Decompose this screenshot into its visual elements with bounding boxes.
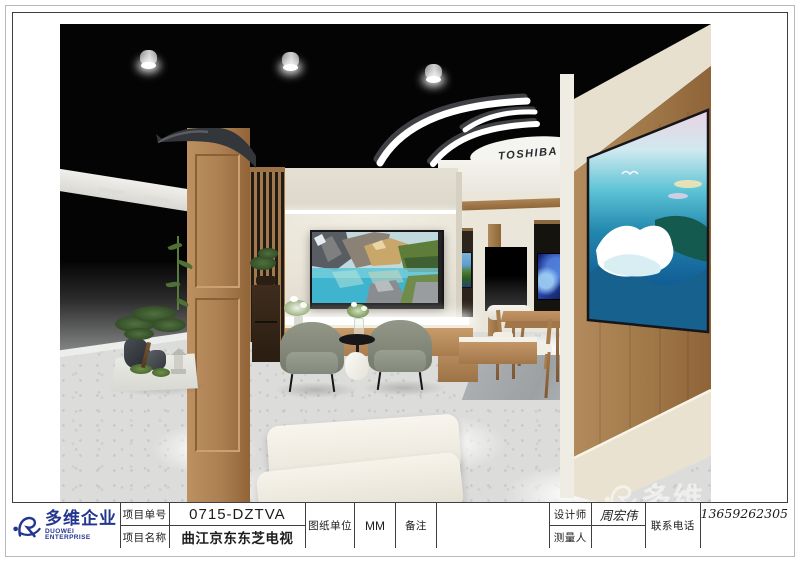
stone-lantern	[171, 369, 186, 374]
downlight	[425, 64, 442, 79]
table-leg	[556, 322, 559, 382]
pine-canopy	[124, 328, 154, 340]
armchair-left	[280, 322, 344, 392]
drawing-sheet: TOSHIBA	[0, 0, 800, 566]
company-logo: 多维企业 DUOWEI ENTERPRISE	[12, 503, 120, 548]
main-tv	[310, 230, 444, 309]
white-flower-bouquet	[282, 296, 314, 324]
designer-label: 设计师	[550, 503, 591, 525]
wall-fascia	[272, 168, 458, 214]
project-no-value: 0715-DZTVA	[170, 503, 305, 525]
wall-side-face	[456, 172, 462, 330]
unit-value: MM	[354, 503, 394, 548]
project-no-label: 项目单号	[121, 503, 169, 525]
cabinet-step	[459, 337, 537, 364]
project-name-value: 曲江京东东芝电视	[170, 525, 305, 548]
phone-value: 13659262305	[701, 506, 788, 521]
company-name-cn: 多维企业	[45, 510, 119, 527]
duowei-logo-icon	[12, 511, 41, 541]
downlight	[140, 50, 157, 65]
remark-value	[436, 503, 548, 548]
designer-value: 周宏伟	[592, 503, 645, 525]
surveyor-value	[592, 525, 645, 548]
bonsai-pot	[256, 276, 276, 285]
pine-canopy	[152, 318, 186, 332]
paper-stool	[345, 352, 369, 380]
company-name-en: DUOWEI ENTERPRISE	[45, 529, 119, 542]
title-block: 多维企业 DUOWEI ENTERPRISE 项目单号 项目名称 0715-DZ…	[12, 502, 788, 548]
interior-rendering: TOSHIBA	[60, 24, 711, 503]
armchair-right	[368, 320, 432, 390]
staff-value-column: 周宏伟	[591, 503, 645, 548]
remark-label: 备注	[395, 503, 436, 548]
tall-wood-panel	[187, 128, 250, 503]
surveyor-label: 测量人	[550, 525, 591, 548]
watermark: 多维	[603, 474, 705, 503]
staff-label-column: 设计师 测量人	[549, 503, 591, 548]
chinese-eave	[156, 124, 256, 174]
dark-doorway	[485, 247, 527, 311]
phone-value-cell: 13659262305	[700, 503, 788, 548]
stone-lantern	[171, 348, 187, 355]
wood-table-apron	[504, 321, 563, 328]
project-label-column: 项目单号 项目名称	[120, 503, 169, 548]
phone-label: 联系电话	[645, 503, 699, 548]
project-value-column: 0715-DZTVA 曲江京东东芝电视	[169, 503, 305, 548]
watermark-text: 多维	[641, 474, 705, 503]
bonsai-foliage	[258, 248, 278, 259]
project-name-label: 项目名称	[121, 525, 169, 548]
moss	[152, 368, 170, 377]
stone-lantern	[174, 355, 183, 369]
dark-console-stand	[252, 285, 280, 362]
mountain-lake-image	[312, 232, 438, 303]
unit-label: 图纸单位	[305, 503, 354, 548]
side-table-top	[339, 334, 375, 345]
downlight	[282, 52, 299, 67]
right-wood-wall	[560, 24, 711, 503]
table-plant	[345, 302, 371, 336]
duowei-mark-icon	[603, 479, 637, 503]
